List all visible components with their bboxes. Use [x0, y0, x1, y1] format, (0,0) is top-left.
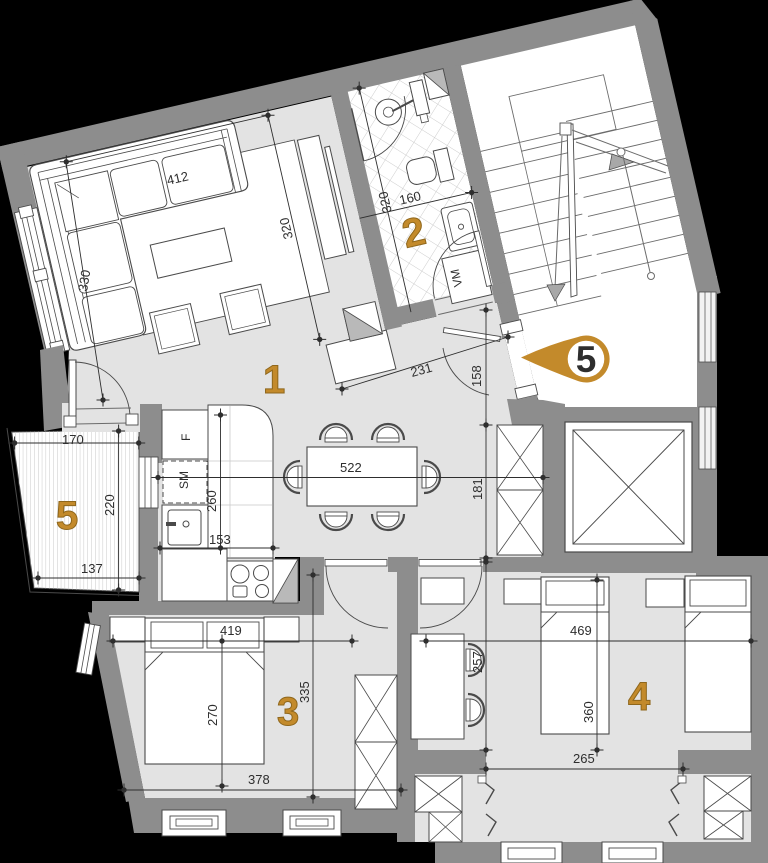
svg-text:360: 360 — [581, 701, 596, 723]
svg-text:181: 181 — [470, 478, 485, 500]
svg-text:335: 335 — [297, 681, 312, 703]
svg-text:3: 3 — [277, 690, 299, 734]
svg-text:4: 4 — [628, 675, 651, 719]
svg-text:1: 1 — [263, 358, 285, 402]
svg-text:158: 158 — [469, 365, 484, 387]
svg-text:5: 5 — [56, 494, 78, 538]
svg-text:220: 220 — [102, 494, 117, 516]
svg-text:5: 5 — [576, 339, 597, 380]
svg-text:SM: SM — [177, 471, 191, 489]
svg-text:265: 265 — [573, 751, 595, 766]
svg-text:260: 260 — [204, 490, 219, 512]
svg-text:257: 257 — [470, 651, 485, 673]
svg-text:522: 522 — [340, 460, 362, 475]
svg-text:F: F — [179, 434, 193, 441]
svg-text:469: 469 — [570, 623, 592, 638]
svg-text:153: 153 — [209, 532, 231, 547]
svg-text:378: 378 — [248, 772, 270, 787]
svg-text:137: 137 — [81, 561, 103, 576]
svg-text:419: 419 — [220, 623, 242, 638]
svg-text:270: 270 — [205, 704, 220, 726]
svg-text:170: 170 — [62, 432, 84, 447]
